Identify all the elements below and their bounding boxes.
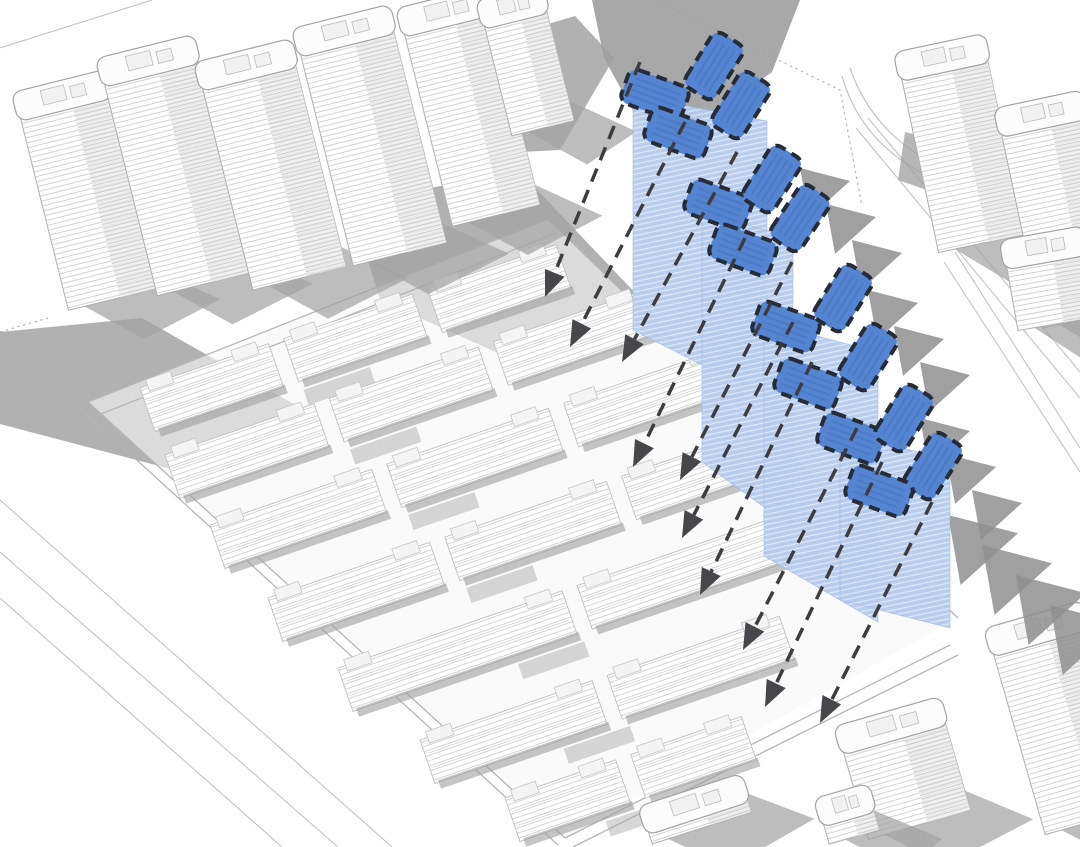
site-axonometric-diagram xyxy=(0,0,1080,847)
road-line xyxy=(0,598,282,847)
road-line xyxy=(0,0,152,48)
diagram-stage xyxy=(0,0,1080,847)
context-tower-core xyxy=(1048,102,1064,117)
context-tower-core xyxy=(1051,237,1066,251)
context-tower-core xyxy=(1025,237,1048,255)
context-tower xyxy=(999,216,1080,376)
tower-roof xyxy=(811,261,875,334)
context-tower-core xyxy=(949,46,965,61)
tower-roof-slab xyxy=(811,261,875,334)
